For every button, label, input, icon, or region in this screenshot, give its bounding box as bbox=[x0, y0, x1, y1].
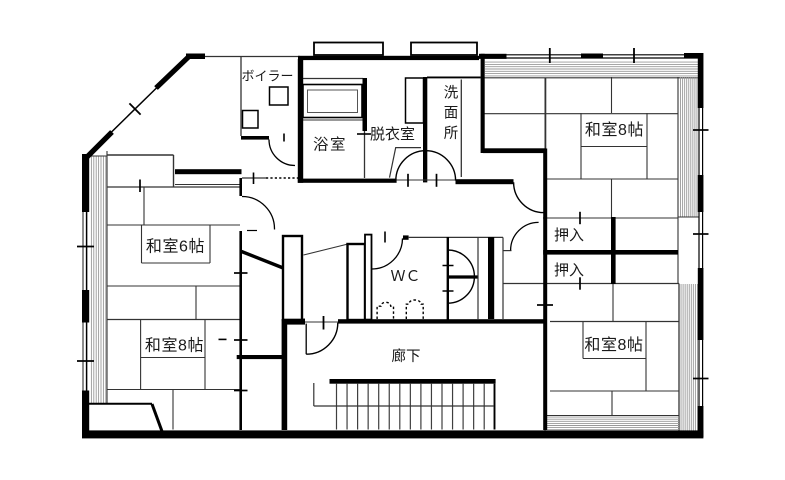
svg-text:脱衣室: 脱衣室 bbox=[370, 126, 415, 143]
svg-text:和室6帖: 和室6帖 bbox=[146, 238, 205, 256]
svg-text:ＷＣ: ＷＣ bbox=[390, 268, 420, 285]
svg-text:和室8帖: 和室8帖 bbox=[585, 121, 644, 139]
svg-text:和室8帖: 和室8帖 bbox=[145, 337, 204, 355]
svg-text:洗: 洗 bbox=[444, 84, 459, 101]
svg-text:浴室: 浴室 bbox=[313, 136, 347, 154]
svg-text:ボイラー: ボイラー bbox=[241, 69, 293, 84]
svg-text:面: 面 bbox=[444, 106, 459, 122]
svg-text:和室8帖: 和室8帖 bbox=[584, 336, 643, 354]
svg-text:所: 所 bbox=[444, 125, 459, 142]
svg-text:押入: 押入 bbox=[554, 227, 584, 244]
svg-text:廊下: 廊下 bbox=[392, 348, 421, 365]
svg-text:押入: 押入 bbox=[554, 262, 584, 279]
